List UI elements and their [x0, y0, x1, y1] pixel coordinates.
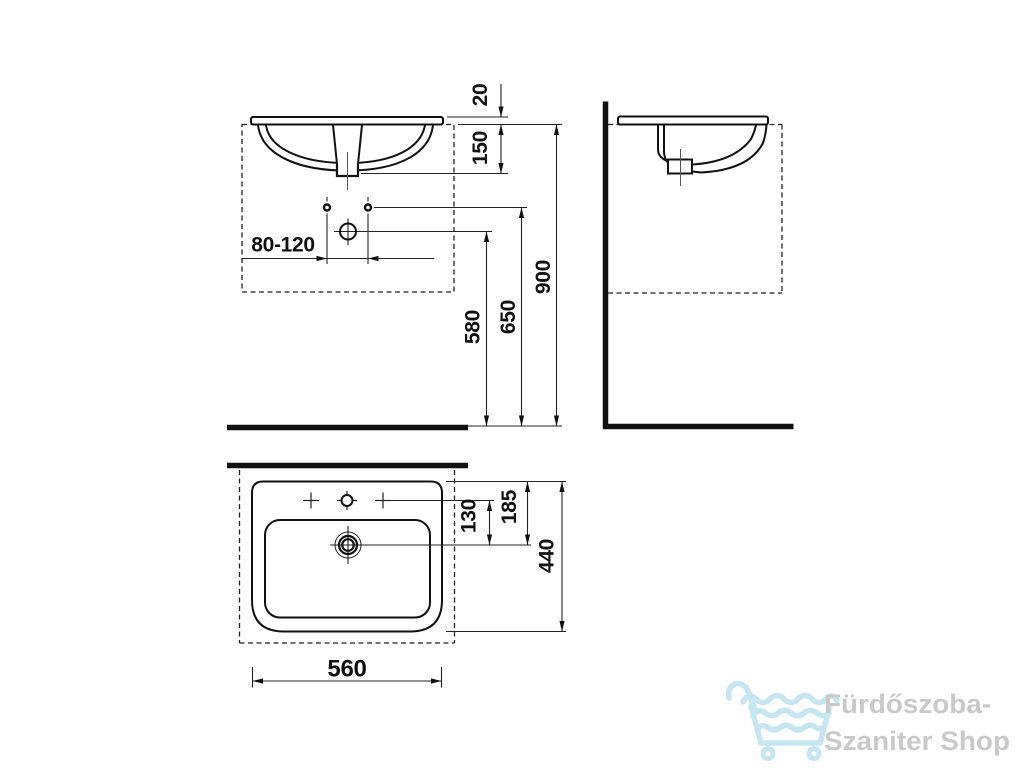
- cart-wheel-left: [763, 749, 773, 759]
- washbasin-dimension-drawing: 20 150 80-120 580 650 900: [0, 0, 1024, 768]
- dim-900-arrow-down: [554, 416, 559, 427]
- dim-20-label: 20: [469, 84, 492, 107]
- dim-650-arrow-down: [519, 416, 524, 427]
- front-left-tap-hole: [324, 205, 330, 211]
- front-right-tap-hole: [365, 205, 371, 211]
- dim-650-label: 650: [497, 300, 520, 334]
- top-centre-tap-hole: [342, 495, 353, 506]
- top-view: 130 185 440 560: [227, 466, 566, 688]
- dim-650-arrow-up: [519, 208, 524, 219]
- dim-900-arrow-up: [554, 125, 559, 136]
- dim-580-arrow-up: [484, 232, 489, 243]
- dim-130-arrow-up: [487, 501, 492, 512]
- dim-80120-label: 80-120: [251, 234, 315, 257]
- dim-560-arrow-left: [253, 678, 264, 683]
- dim-440-label: 440: [536, 539, 559, 573]
- side-view: [603, 102, 794, 430]
- dim-580-label: 580: [462, 310, 485, 344]
- cart-wave-bottom: [757, 725, 824, 730]
- dim-440-arrow-down: [559, 621, 564, 632]
- dim-185-arrow-down: [525, 535, 530, 546]
- dim-150-arrow-down: [498, 163, 503, 174]
- dim-130-arrow-down: [487, 535, 492, 546]
- dim-130-label: 130: [458, 499, 481, 533]
- dim-560-arrow-right: [431, 678, 442, 683]
- dim-560-label: 560: [327, 656, 366, 683]
- watermark-line2: Szaniter Shop: [824, 726, 1010, 756]
- dim-185-arrow-up: [525, 482, 530, 493]
- cart-wave-middle: [753, 710, 829, 716]
- dim-80120-arrow-left: [368, 256, 379, 261]
- front-view: 20 150 80-120 580 650 900: [227, 84, 562, 428]
- watermark-line1: Fürdőszoba-: [824, 689, 991, 719]
- cart-wheel-right: [809, 749, 819, 759]
- dim-150-arrow-up: [498, 125, 503, 136]
- shopping-cart-waves-icon: [729, 684, 837, 759]
- cart-wave-top: [743, 696, 837, 703]
- watermark-logo: Fürdőszoba- Szaniter Shop: [729, 684, 1010, 759]
- dim-20-arrow-down: [498, 107, 503, 118]
- technical-drawing-page: 20 150 80-120 580 650 900: [0, 0, 1024, 768]
- front-rim: [251, 117, 443, 125]
- dim-440-arrow-up: [559, 482, 564, 493]
- dim-80120-arrow-right: [317, 256, 328, 261]
- dim-150-label: 150: [469, 131, 492, 165]
- dim-580-arrow-down: [484, 416, 489, 427]
- dim-900-label: 900: [532, 260, 555, 294]
- side-rim: [618, 117, 768, 125]
- dim-185-label: 185: [498, 489, 521, 524]
